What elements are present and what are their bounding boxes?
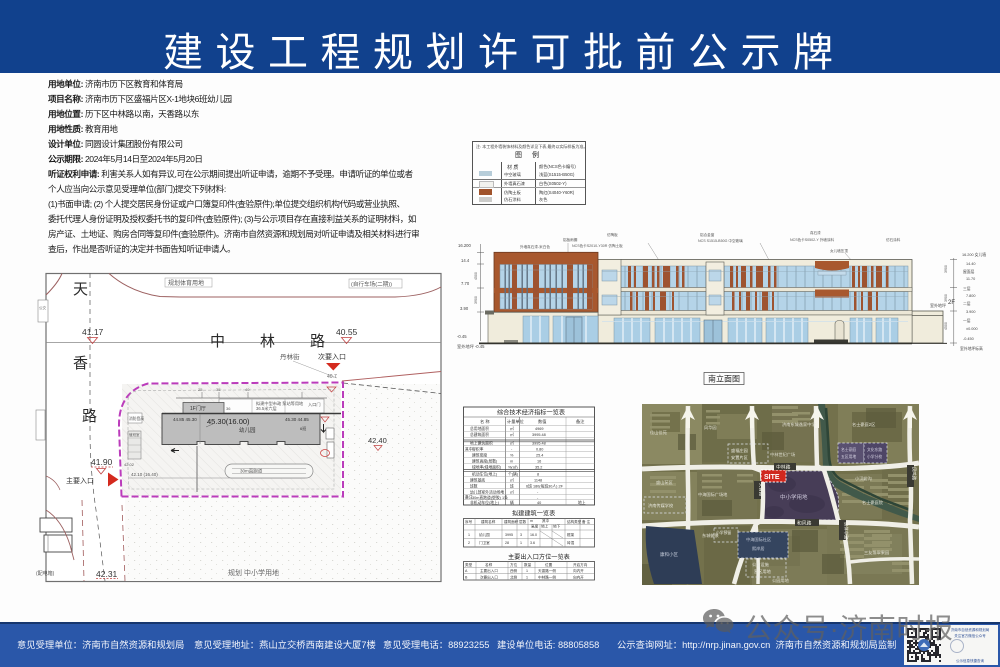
svg-text:建筑高度(层数): 建筑高度(层数) [472, 458, 498, 463]
svg-text:次要入口: 次要入口 [318, 352, 346, 361]
svg-text:开启方向: 开启方向 [573, 562, 588, 567]
svg-text:1148: 1148 [534, 478, 542, 482]
svg-text:30m直跑道(塑胶) 1条: 30m直跑道(塑胶) 1条 [472, 495, 508, 500]
svg-text:幼儿园: 幼儿园 [239, 426, 256, 434]
svg-text:真石漆: 真石漆 [810, 230, 821, 235]
svg-text:康和小区: 康和小区 [660, 551, 678, 558]
svg-text:绿地率(绿地面积): 绿地率(绿地面积) [472, 464, 502, 469]
svg-text:班数: 班数 [470, 483, 478, 488]
svg-text:44.85 45.30: 44.85 45.30 [173, 417, 197, 422]
svg-text:非机动车位(地上): 非机动车位(地上) [470, 500, 500, 505]
svg-text:㎡: ㎡ [510, 432, 514, 437]
svg-text:45.30(16.00): 45.30(16.00) [207, 417, 250, 426]
svg-text:名称: 名称 [485, 562, 493, 567]
svg-text:16.200 女儿墙: 16.200 女儿墙 [962, 252, 986, 257]
svg-text:建筑面积: 建筑面积 [504, 519, 519, 524]
svg-text:砖混: 砖混 [567, 540, 575, 545]
svg-text:中林路一侧: 中林路一侧 [538, 575, 556, 580]
svg-text:次要出入口: 次要出入口 [480, 575, 498, 580]
svg-text:数量: 数量 [524, 562, 532, 567]
svg-text:3995: 3995 [505, 533, 513, 537]
svg-text:1: 1 [526, 569, 528, 573]
svg-text:主要出入口方位一览表: 主要出入口方位一览表 [508, 553, 570, 561]
svg-text:幼儿园: 幼儿园 [479, 532, 490, 537]
svg-text:盛山苑区: 盛山苑区 [656, 479, 673, 486]
svg-text:中小学用地: 中小学用地 [780, 493, 808, 501]
svg-text:室外地坪标高: 室外地坪标高 [960, 346, 983, 351]
svg-text:14.4: 14.4 [461, 258, 470, 263]
svg-text:拟建建筑一览表: 拟建建筑一览表 [512, 510, 555, 518]
svg-text:凤鸣路: 凤鸣路 [911, 467, 918, 481]
svg-text:幼儿部室外活动场地: 幼儿部室外活动场地 [470, 489, 504, 494]
svg-text:规划体育用地: 规划体育用地 [168, 279, 204, 287]
svg-text:3900: 3900 [474, 296, 478, 304]
svg-text:一层: 一层 [963, 318, 971, 323]
svg-text:7.800: 7.800 [966, 294, 976, 298]
svg-text:层数: 层数 [519, 519, 527, 524]
svg-text:盛福庄园: 盛福庄园 [731, 447, 748, 454]
svg-text:和风路: 和风路 [797, 520, 812, 527]
svg-text:名士豪庭2区: 名士豪庭2区 [852, 421, 875, 428]
svg-text:综合技术经济指标一览表: 综合技术经济指标一览表 [497, 409, 565, 417]
svg-text:铝板雨棚: 铝板雨棚 [563, 237, 578, 242]
svg-text:±0.000: ±0.000 [966, 327, 978, 331]
svg-text:南立面图: 南立面图 [708, 374, 740, 384]
svg-text:中海国际广场地: 中海国际广场地 [698, 491, 728, 498]
svg-text:㎡: ㎡ [510, 477, 514, 482]
svg-text:36: 36 [226, 406, 231, 411]
svg-text:地上建筑面积: 地上建筑面积 [470, 441, 493, 446]
svg-text:文化东路: 文化东路 [867, 447, 882, 452]
svg-text:-0.450: -0.450 [963, 337, 974, 341]
svg-text:总建筑面积: 总建筑面积 [470, 432, 489, 437]
svg-text:1: 1 [520, 541, 522, 545]
svg-text:班: 班 [510, 483, 514, 488]
svg-text:门卫室: 门卫室 [479, 540, 490, 545]
svg-text:小学分校: 小学分校 [867, 454, 882, 459]
svg-text:16.200: 16.200 [458, 243, 471, 248]
svg-text:路: 路 [82, 408, 97, 425]
svg-text:8: 8 [537, 472, 539, 476]
svg-text:㎡: ㎡ [510, 441, 514, 446]
svg-text:40: 40 [537, 501, 541, 505]
svg-text:36.5米六层: 36.5米六层 [256, 405, 277, 412]
svg-text:三层: 三层 [963, 286, 971, 291]
svg-text:中海国际社区: 中海国际社区 [746, 536, 771, 543]
svg-text:11.70: 11.70 [966, 277, 975, 281]
svg-text:五区用地: 五区用地 [841, 454, 856, 459]
svg-text:41.90: 41.90 [91, 457, 113, 467]
svg-text:公园用地: 公园用地 [772, 577, 790, 584]
svg-text:机动车位(地上): 机动车位(地上) [472, 471, 498, 476]
svg-text:主要出入口: 主要出入口 [480, 568, 498, 573]
svg-text:3: 3 [520, 533, 522, 537]
svg-text:三友翡翠果园: 三友翡翠果园 [864, 549, 889, 556]
svg-text:类型: 类型 [465, 562, 473, 567]
svg-text:30m直跑道: 30m直跑道 [240, 468, 263, 475]
svg-text:位置: 位置 [545, 562, 553, 567]
svg-text:个(辆): 个(辆) [508, 471, 519, 476]
svg-text:二层: 二层 [963, 301, 971, 306]
svg-text:NCS S1515-B50G 中空玻璃: NCS S1515-B50G 中空玻璃 [698, 238, 743, 243]
svg-text:3.6: 3.6 [530, 541, 535, 545]
svg-text:6班: 6班 [300, 425, 306, 431]
svg-text:值班室: 值班室 [129, 432, 140, 437]
svg-text:天香路一侧: 天香路一侧 [538, 568, 556, 573]
svg-text:2F: 2F [948, 300, 955, 306]
svg-text:室外地坪: 室外地坪 [930, 302, 946, 308]
svg-text:名士豪庭院: 名士豪庭院 [862, 499, 884, 506]
svg-text:NCS色卡S0502-Y 外墙涂料: NCS色卡S0502-Y 外墙涂料 [790, 237, 834, 242]
svg-text:东城御景: 东城御景 [702, 532, 719, 539]
svg-text:佳山佳苑: 佳山佳苑 [650, 429, 668, 436]
svg-text:m: m [510, 459, 513, 463]
svg-text:4969: 4969 [535, 427, 543, 431]
svg-text:数值: 数值 [538, 418, 546, 425]
svg-text:3.900: 3.900 [966, 310, 976, 314]
svg-text:奥体中路: 奥体中路 [843, 522, 850, 540]
svg-text:35.2: 35.2 [535, 465, 542, 469]
svg-text:公用设施: 公用设施 [752, 561, 770, 568]
svg-text:地上: 地上 [578, 500, 586, 505]
svg-text:其中: 其中 [542, 518, 550, 523]
svg-text:向内开: 向内开 [573, 575, 584, 580]
svg-text:28: 28 [505, 541, 509, 545]
svg-text:序号: 序号 [465, 519, 473, 524]
svg-text:m: m [530, 519, 533, 523]
svg-text:6班 180(每班30人) 2F: 6班 180(每班30人) 2F [526, 483, 564, 488]
svg-text:2: 2 [468, 541, 470, 545]
svg-text:辆: 辆 [510, 500, 514, 505]
svg-text:营区用地: 营区用地 [754, 568, 772, 575]
svg-text:安置片区: 安置片区 [731, 454, 748, 461]
svg-text:建筑基底: 建筑基底 [470, 477, 485, 482]
svg-text:25: 25 [198, 387, 203, 392]
svg-text:40: 40 [245, 387, 250, 392]
svg-text:3995.48: 3995.48 [532, 433, 546, 437]
svg-text:14.40: 14.40 [966, 262, 976, 266]
svg-text:结构类型: 结构类型 [567, 519, 582, 524]
svg-text:主要入口: 主要入口 [66, 476, 94, 485]
svg-text:总用地面积: 总用地面积 [470, 426, 489, 431]
svg-text:方位: 方位 [510, 562, 518, 567]
svg-text:0.80: 0.80 [536, 447, 543, 451]
svg-text:济南东城逸家中学: 济南东城逸家中学 [782, 421, 816, 428]
svg-text:济南传媒学校: 济南传媒学校 [648, 502, 674, 509]
svg-text:45.30 44.85: 45.30 44.85 [285, 417, 309, 422]
svg-text:名士豪庭: 名士豪庭 [841, 447, 856, 452]
svg-text:丹林街: 丹林街 [280, 352, 300, 361]
svg-text:(配电箱): (配电箱) [36, 570, 55, 577]
svg-text:容积率: 容积率 [472, 446, 484, 451]
svg-text:建筑密度: 建筑密度 [472, 452, 487, 457]
svg-text:42.31: 42.31 [96, 569, 118, 579]
svg-text:框架: 框架 [567, 532, 575, 537]
svg-text:1: 1 [526, 576, 528, 580]
svg-text:NCS色卡S2010-Y30R 仿陶土板: NCS色卡S2010-Y30R 仿陶土板 [572, 243, 623, 248]
svg-text:小汉峪沟: 小汉峪沟 [855, 475, 872, 482]
svg-text:铝合金窗: 铝合金窗 [700, 232, 715, 237]
svg-text:42.40: 42.40 [368, 436, 387, 445]
svg-text:4500: 4500 [944, 322, 948, 330]
svg-text:备注: 备注 [576, 418, 585, 425]
svg-text:16.0: 16.0 [530, 533, 537, 537]
svg-text:㎡: ㎡ [510, 489, 514, 494]
svg-text:屋面层: 屋面层 [963, 269, 975, 274]
svg-text:女儿墙压顶: 女儿墙压顶 [830, 248, 848, 253]
svg-text:西侧: 西侧 [510, 568, 518, 573]
svg-text:42.10 (16.40): 42.10 (16.40) [131, 472, 158, 477]
svg-text:仿陶板: 仿陶板 [607, 232, 618, 237]
svg-text:25.4: 25.4 [536, 453, 543, 457]
svg-text:40.55: 40.55 [336, 327, 358, 337]
svg-text:建筑名称: 建筑名称 [481, 519, 496, 524]
svg-text:天香路: 天香路 [758, 483, 765, 497]
svg-text:3.90: 3.90 [460, 306, 469, 311]
svg-text:消防登高: 消防登高 [129, 416, 144, 421]
svg-text:16: 16 [537, 459, 541, 463]
svg-text:%(㎡): %(㎡) [508, 464, 518, 469]
svg-text:中林世纪广场: 中林世纪广场 [770, 451, 795, 458]
svg-text:入口门: 入口门 [308, 401, 321, 408]
svg-text:名 称: 名 称 [480, 418, 490, 425]
svg-text:向内开: 向内开 [573, 568, 584, 573]
svg-text:(自行车场(二期)): (自行车场(二期)) [351, 280, 392, 288]
svg-text:1: 1 [468, 533, 470, 537]
svg-text:风华园: 风华园 [704, 424, 717, 431]
svg-text:高度: 高度 [531, 524, 539, 529]
svg-text:40.7: 40.7 [327, 374, 337, 380]
svg-text:天: 天 [73, 281, 88, 298]
svg-text:地上: 地上 [541, 524, 549, 529]
svg-text:备 注: 备 注 [582, 519, 591, 524]
svg-text:香: 香 [73, 355, 88, 372]
svg-text:中林路: 中林路 [776, 464, 791, 471]
svg-text:仿石涂料: 仿石涂料 [886, 237, 901, 242]
svg-text:规划 中小学用地: 规划 中小学用地 [228, 568, 279, 577]
svg-text:41.17: 41.17 [82, 327, 104, 337]
svg-text:北侧: 北侧 [510, 575, 518, 580]
svg-text:3995.48: 3995.48 [532, 442, 546, 446]
svg-text:计量单位: 计量单位 [507, 418, 524, 425]
svg-text:外墙真石漆-米白色: 外墙真石漆-米白色 [520, 244, 550, 249]
svg-text:-0.45: -0.45 [457, 334, 467, 339]
svg-text:7.70: 7.70 [461, 281, 470, 286]
svg-text:地下: 地下 [553, 524, 561, 529]
svg-text:SITE: SITE [764, 474, 780, 481]
svg-text:35: 35 [216, 387, 221, 392]
svg-text:㎡: ㎡ [510, 426, 514, 431]
svg-text:1F门厅: 1F门厅 [190, 405, 206, 412]
svg-text:42.02: 42.02 [124, 462, 135, 467]
svg-text:3900: 3900 [944, 265, 948, 273]
svg-text:4500: 4500 [474, 272, 478, 280]
svg-text:公交: 公交 [39, 305, 46, 310]
